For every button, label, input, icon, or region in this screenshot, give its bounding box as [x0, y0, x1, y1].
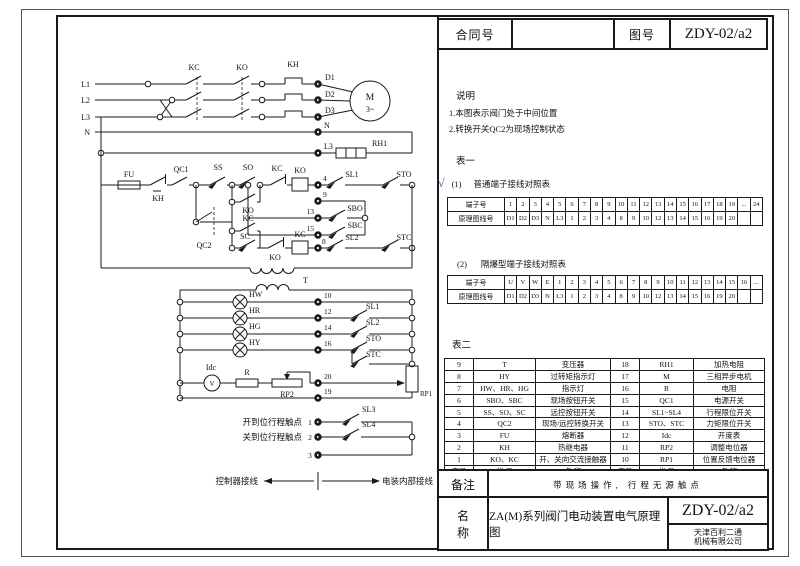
- label-terminal-16: 16: [324, 339, 332, 348]
- label-rh1: RH1: [372, 139, 387, 148]
- label-qc1: QC1: [173, 165, 188, 174]
- label-l3-terminal: L3: [324, 142, 333, 151]
- label-internal-wiring: 电装内部接线: [382, 476, 434, 486]
- label-hw: HW: [249, 290, 263, 299]
- label-kh-relay: KH: [287, 60, 299, 69]
- label-meter-v: V: [209, 380, 214, 388]
- label-l2: L2: [81, 96, 90, 105]
- control-circuit: FU KH QC1 SS SO KC KO 4 SL1 STO: [101, 163, 415, 268]
- label-sbo: SBO: [347, 204, 363, 213]
- lamp-hy-icon: [233, 343, 247, 357]
- label-terminal-2: 2: [308, 433, 312, 442]
- label-so: SO: [243, 163, 253, 172]
- label-l1: L1: [81, 80, 90, 89]
- label-sbc: SBC: [347, 221, 362, 230]
- label-kc-nc: KC: [271, 164, 282, 173]
- label-hr: HR: [249, 306, 261, 315]
- label-terminal-12: 12: [324, 307, 332, 316]
- label-kc-contactor: KC: [188, 63, 199, 72]
- label-sl1: SL1: [345, 170, 358, 179]
- lamp-hg-icon: [233, 327, 247, 341]
- label-ko-coil: KO: [294, 166, 306, 175]
- label-terminal-9: 9: [323, 190, 327, 199]
- wiring-legend: 控制器接线 电装内部接线: [215, 472, 433, 490]
- label-hy: HY: [249, 338, 261, 347]
- label-motor: M: [366, 93, 375, 103]
- label-terminal-1: 1: [308, 418, 312, 427]
- drawing-sheet: 合同号 图号 ZDY-02/a2 说明 1.本图表示阀门处于中间位置 2.转换开…: [0, 0, 800, 566]
- label-r: R: [244, 368, 250, 377]
- label-qc2: QC2: [196, 241, 211, 250]
- label-ko-contactor: KO: [236, 63, 248, 72]
- schematic-drawing: L1 L2 L3 N KC KO KH D1 D2 D3 M 3~: [0, 0, 800, 566]
- label-terminal-20: 20: [324, 372, 332, 381]
- label-controller-wiring: 控制器接线: [215, 476, 258, 486]
- label-idc: Idc: [206, 363, 217, 372]
- label-sl2b: SL2: [366, 318, 379, 327]
- label-terminal-3: 3: [308, 451, 312, 460]
- label-terminal-14: 14: [324, 323, 332, 332]
- label-n-terminal: N: [324, 121, 330, 130]
- label-rp1: RP1: [420, 390, 433, 398]
- label-sl3: SL3: [362, 405, 375, 414]
- meter-circuit: V Idc R RP2 20 19 RP1: [177, 363, 432, 401]
- label-terminal-10: 10: [324, 291, 332, 300]
- label-terminal-8: 8: [322, 237, 326, 246]
- label-fu: FU: [124, 170, 134, 179]
- label-stc: STC: [397, 233, 412, 242]
- lamp-hw-icon: [233, 295, 247, 309]
- label-motor-phase: 3~: [366, 105, 375, 114]
- label-hg: HG: [249, 322, 261, 331]
- label-terminal-4: 4: [323, 174, 327, 183]
- label-kh-contact: KH: [152, 194, 164, 203]
- lamp-circuit: HW HR HG HY 10 12 14 16 SL1 SL2 STO STC: [177, 290, 415, 368]
- label-sl2: SL2: [345, 233, 358, 242]
- label-n: N: [84, 128, 90, 137]
- label-terminal-13: 13: [307, 207, 315, 216]
- label-terminal-15: 15: [307, 224, 315, 233]
- label-d2: D2: [325, 90, 335, 99]
- label-l3: L3: [81, 113, 90, 122]
- label-stob: STO: [366, 334, 381, 343]
- label-close-contact: 关到位行程触点: [242, 432, 302, 442]
- label-sl1b: SL1: [366, 302, 379, 311]
- label-sto: STO: [397, 170, 412, 179]
- label-sl4: SL4: [362, 420, 375, 429]
- label-ss: SS: [214, 163, 223, 172]
- label-d1: D1: [325, 73, 335, 82]
- label-open-contact: 开到位行程触点: [242, 417, 302, 427]
- limit-contact-circuit: 开到位行程触点 1 SL3 关到位行程触点 2 SL4 3: [242, 405, 414, 460]
- label-transformer: T: [303, 276, 308, 285]
- label-ko-nc: KO: [269, 253, 281, 262]
- lamp-hr-icon: [233, 311, 247, 325]
- label-stcb: STC: [366, 350, 381, 359]
- label-terminal-19: 19: [324, 387, 332, 396]
